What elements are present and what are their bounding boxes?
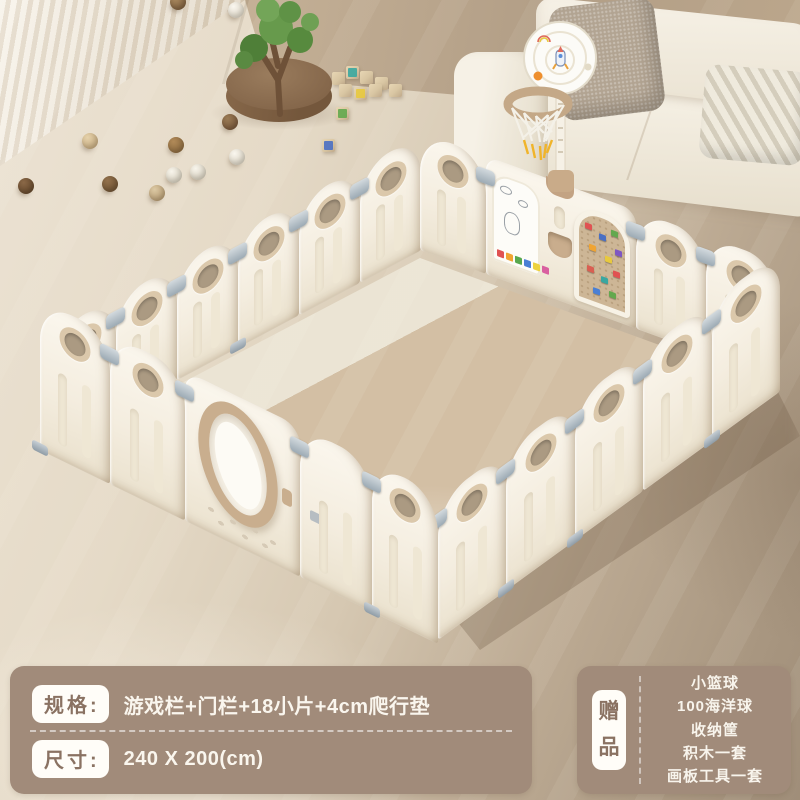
wooden-block	[360, 71, 373, 84]
toy-block	[611, 230, 618, 239]
size-label: 尺寸:	[32, 740, 109, 778]
doodle-bear	[504, 210, 520, 238]
basketball-hoop	[498, 12, 624, 202]
ocean-ball	[168, 137, 184, 153]
hoop-clamp	[548, 170, 574, 192]
tile	[542, 265, 549, 275]
hinge	[167, 273, 186, 298]
tile	[506, 252, 513, 262]
wooden-block	[339, 84, 352, 97]
product-scene: 规格: 游戏栏+门栏+18小片+4cm爬行垫 尺寸: 240 X 200(cm)…	[0, 0, 800, 800]
decor-tree	[222, 0, 342, 124]
fence-panel	[420, 132, 486, 274]
tile	[497, 249, 504, 259]
label-tag	[310, 510, 325, 527]
hinge	[289, 208, 308, 233]
spec-value: 游戏栏+门栏+18小片+4cm爬行垫	[124, 690, 430, 719]
star-sticker	[585, 64, 592, 71]
storage-pocket	[548, 231, 572, 262]
ocean-ball	[222, 114, 238, 130]
ocean-ball	[82, 133, 98, 149]
divider	[30, 730, 512, 732]
panel-slot	[554, 205, 565, 231]
ocean-ball	[166, 167, 182, 183]
wooden-block	[354, 87, 367, 100]
toy-block	[605, 255, 612, 264]
gift-item: 积木一套	[683, 746, 747, 761]
hinge	[228, 241, 247, 266]
wooden-block	[389, 84, 402, 97]
hinge-foot	[364, 601, 380, 619]
spec-row: 规格: 游戏栏+门栏+18小片+4cm爬行垫	[32, 685, 430, 723]
gift-item: 100海洋球	[677, 699, 753, 714]
toy-block	[615, 249, 622, 258]
spec-panel: 规格: 游戏栏+门栏+18小片+4cm爬行垫 尺寸: 240 X 200(cm)	[10, 666, 532, 794]
toy-block	[599, 233, 606, 242]
hinge	[496, 457, 515, 486]
toy-block	[587, 265, 594, 274]
hinge	[106, 306, 125, 331]
ocean-ball	[228, 2, 244, 18]
gift-item: 画板工具一套	[667, 769, 763, 784]
tile	[515, 256, 522, 266]
magnet-letter-tiles	[497, 249, 549, 275]
door-latch	[282, 487, 292, 508]
wooden-block	[369, 84, 382, 97]
hinge	[350, 176, 369, 201]
toy-block	[609, 291, 616, 300]
gift-item: 收纳筐	[691, 723, 739, 738]
wooden-block	[322, 139, 335, 152]
ocean-ball	[149, 185, 165, 201]
hinge-foot	[32, 439, 48, 457]
spec-label: 规格:	[32, 685, 109, 723]
tile	[524, 259, 531, 269]
divider-vertical	[639, 676, 641, 784]
ocean-ball	[190, 164, 206, 180]
ball-sticker	[534, 72, 543, 81]
toy-block	[613, 270, 620, 279]
spec-row: 尺寸: 240 X 200(cm)	[32, 740, 264, 778]
striped-curtain	[0, 0, 260, 180]
gift-badge-text: 赠品	[599, 694, 620, 765]
gift-item: 小篮球	[691, 676, 739, 691]
net-yellow-strands	[524, 140, 552, 160]
toy-block	[601, 276, 608, 285]
gift-panel: 赠品 小篮球 100海洋球 收纳筐 积木一套 画板工具一套	[577, 666, 791, 794]
wooden-block	[346, 66, 359, 79]
toy-block	[585, 222, 592, 231]
toy-block	[589, 244, 596, 253]
wooden-block	[336, 107, 349, 120]
gift-list: 小篮球 100海洋球 收纳筐 积木一套 画板工具一套	[645, 676, 785, 784]
tile	[533, 262, 540, 272]
fence-panel	[360, 135, 421, 282]
toy-block	[593, 287, 600, 296]
fence-panel	[372, 462, 438, 644]
ocean-ball	[229, 149, 245, 165]
chevron-pillow	[698, 64, 800, 167]
ocean-ball	[18, 178, 34, 194]
hinge	[633, 357, 652, 386]
gift-badge: 赠品	[592, 690, 626, 770]
busy-board	[574, 203, 630, 319]
ocean-ball	[102, 176, 118, 192]
size-value: 240 X 200(cm)	[124, 748, 264, 771]
